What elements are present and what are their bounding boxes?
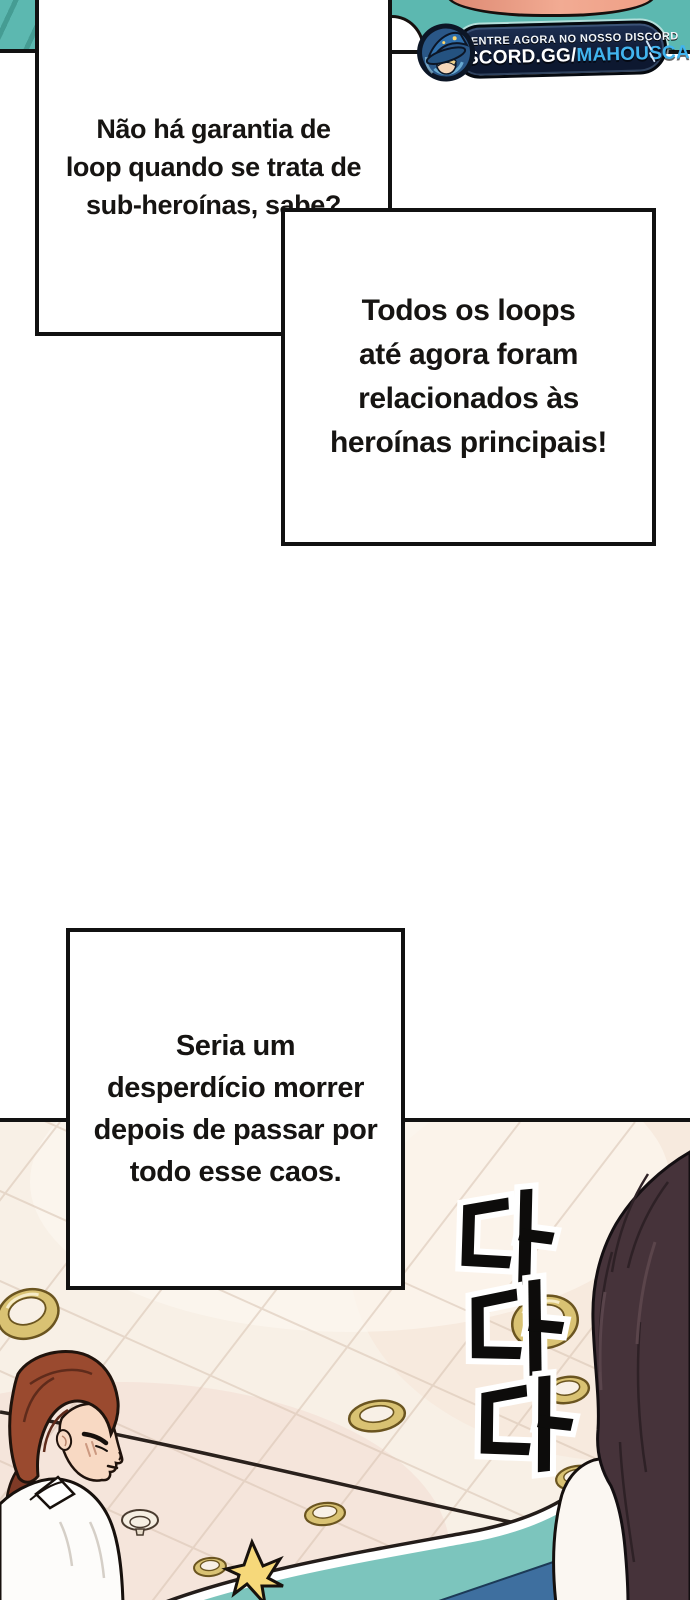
speech-line: depois de passar por bbox=[94, 1109, 378, 1151]
discord-banner-pill[interactable]: ENTRE AGORA NO NOSSO DISCORD DISCORD.GG/… bbox=[452, 20, 667, 80]
discord-server-name: MAHOUSCAN bbox=[576, 41, 690, 65]
wizard-mascot-icon bbox=[414, 21, 478, 85]
speech-line: todo esse caos. bbox=[130, 1151, 342, 1193]
speech-line: Não há garantia de bbox=[96, 110, 330, 148]
banner-slash-decoration bbox=[644, 37, 657, 65]
speech-line: loop quando se trata de bbox=[66, 148, 361, 186]
speech-line: Seria um bbox=[176, 1025, 295, 1067]
speech-line: até agora foram bbox=[359, 333, 578, 377]
discord-banner[interactable]: ENTRE AGORA NO NOSSO DISCORD DISCORD.GG/… bbox=[418, 18, 667, 82]
speech-line: heroínas principais! bbox=[330, 421, 607, 465]
speech-line: desperdício morrer bbox=[107, 1067, 364, 1109]
speech-line: Todos os loops bbox=[362, 289, 576, 333]
manhwa-page: ENTRE AGORA NO NOSSO DISCORD DISCORD.GG/… bbox=[0, 0, 690, 1600]
speech-line: relacionados às bbox=[358, 377, 579, 421]
speech-bubble-3: Seria um desperdício morrer depois de pa… bbox=[66, 928, 405, 1290]
character-skin-fragment bbox=[447, 0, 655, 17]
previous-panel-fragment-left bbox=[0, 0, 37, 53]
speech-bubble-2: Todos os loops até agora foram relaciona… bbox=[281, 208, 656, 546]
